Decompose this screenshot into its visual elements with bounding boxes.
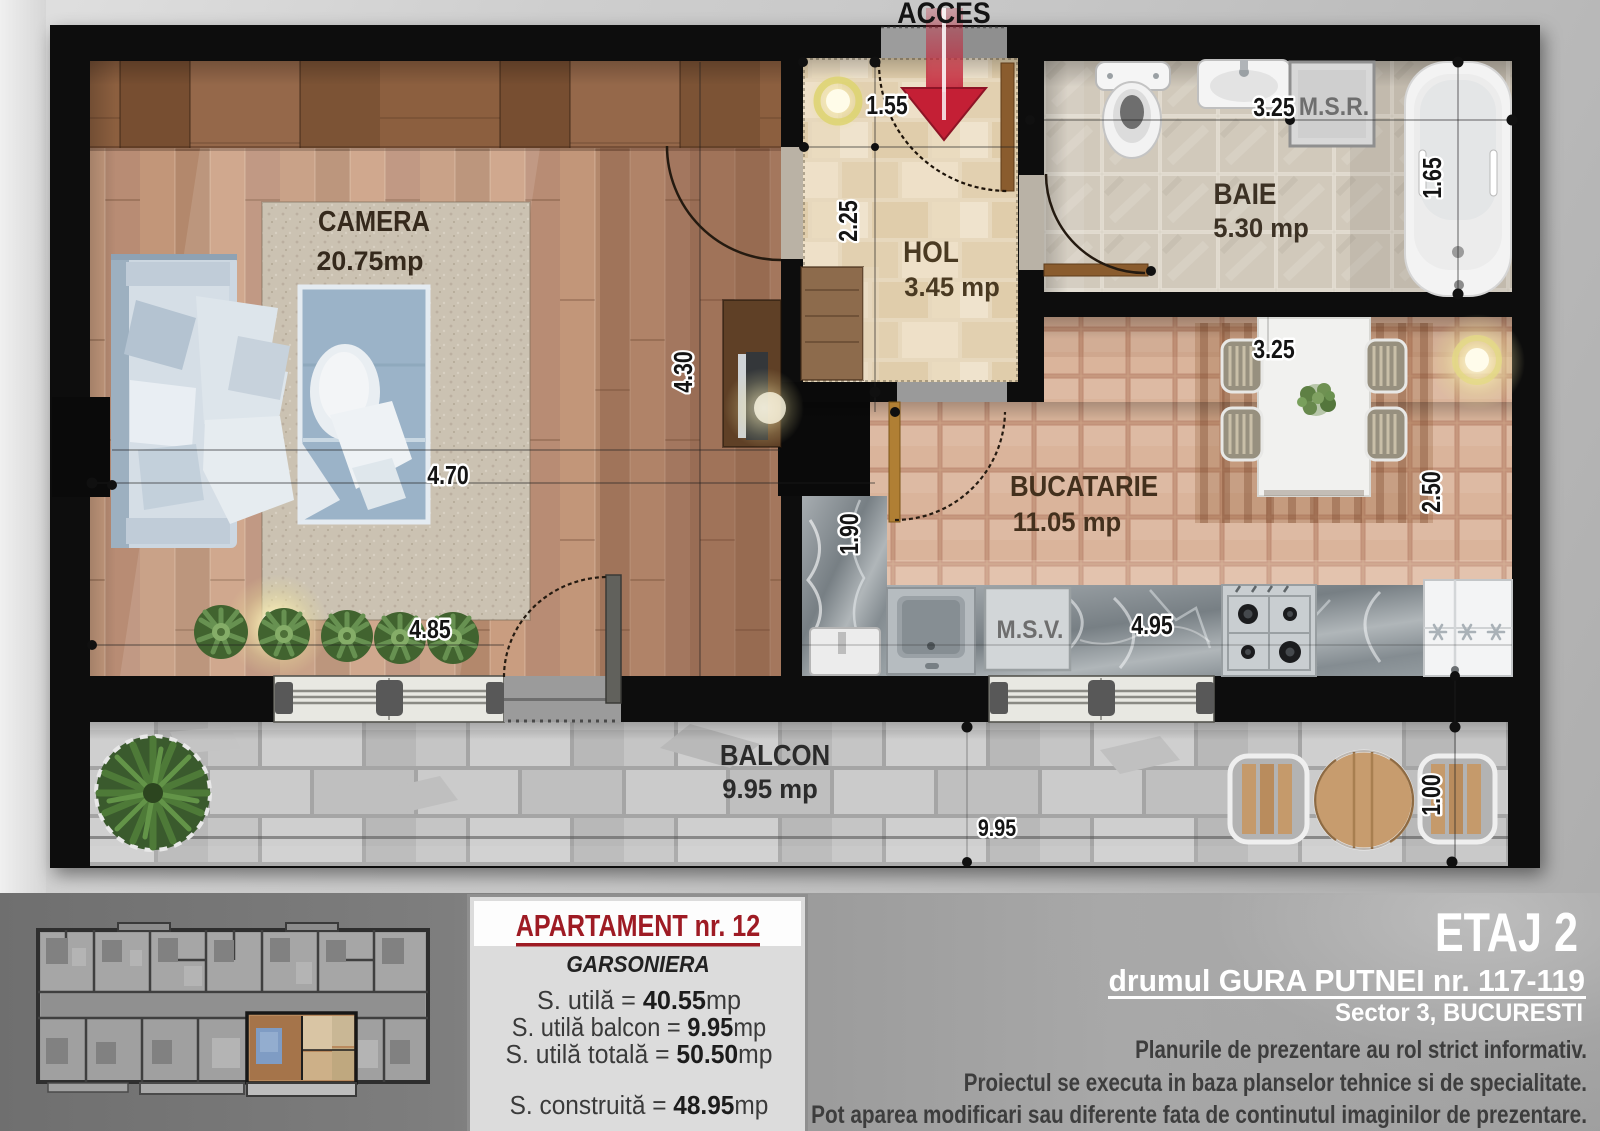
svg-text:ETAJ 2: ETAJ 2 — [1435, 902, 1578, 963]
svg-text:HOL: HOL — [903, 234, 959, 268]
svg-text:Sector 3, BUCURESTI: Sector 3, BUCURESTI — [1335, 1000, 1583, 1028]
svg-text:M.S.V.: M.S.V. — [997, 616, 1064, 644]
svg-text:4.95: 4.95 — [1131, 611, 1172, 641]
svg-text:BUCATARIE: BUCATARIE — [1010, 470, 1158, 503]
svg-text:BALCON: BALCON — [720, 739, 830, 772]
svg-text:1.90: 1.90 — [835, 513, 865, 554]
svg-text:drumul GURA PUTNEI nr. 117-119: drumul GURA PUTNEI nr. 117-119 — [1109, 964, 1585, 999]
svg-text:4.70: 4.70 — [427, 461, 468, 491]
svg-text:3.25: 3.25 — [1253, 93, 1294, 123]
svg-text:S. utilă totală = 50.50mp: S. utilă totală = 50.50mp — [506, 1040, 773, 1069]
svg-text:3.45 mp: 3.45 mp — [904, 271, 1000, 302]
svg-text:4.30: 4.30 — [669, 351, 699, 392]
svg-text:9.95 mp: 9.95 mp — [722, 773, 818, 804]
svg-text:20.75mp: 20.75mp — [317, 246, 424, 276]
svg-text:5.30 mp: 5.30 mp — [1213, 212, 1309, 243]
svg-text:Planurile de prezentare au rol: Planurile de prezentare au rol strict in… — [1135, 1035, 1587, 1063]
svg-text:11.05 mp: 11.05 mp — [1013, 506, 1121, 537]
svg-text:APARTAMENT nr. 12: APARTAMENT nr. 12 — [516, 907, 760, 942]
svg-text:1.65: 1.65 — [1418, 157, 1448, 198]
svg-text:9.95: 9.95 — [978, 814, 1016, 841]
svg-text:2.25: 2.25 — [834, 200, 864, 241]
svg-text:M.S.R.: M.S.R. — [1299, 93, 1369, 121]
svg-text:3.25: 3.25 — [1253, 335, 1294, 365]
svg-text:S. utilă = 40.55mp: S. utilă = 40.55mp — [537, 987, 741, 1015]
svg-text:1.55: 1.55 — [866, 91, 907, 121]
svg-text:CAMERA: CAMERA — [318, 204, 430, 237]
svg-text:Pot aparea modificari sau dife: Pot aparea modificari sau diferente fata… — [811, 1100, 1587, 1128]
svg-text:4.85: 4.85 — [409, 615, 450, 645]
svg-text:1.00: 1.00 — [1417, 774, 1447, 815]
svg-text:2.50: 2.50 — [1417, 471, 1447, 512]
svg-text:BAIE: BAIE — [1213, 176, 1276, 210]
svg-text:ACCES: ACCES — [897, 0, 990, 30]
svg-text:Proiectul se executa in baza p: Proiectul se executa in baza planselor t… — [964, 1068, 1587, 1096]
svg-text:S. utilă balcon = 9.95mp: S. utilă balcon = 9.95mp — [512, 1014, 766, 1042]
svg-text:S. construită = 48.95mp: S. construită = 48.95mp — [510, 1091, 769, 1120]
svg-text:GARSONIERA: GARSONIERA — [566, 951, 709, 977]
